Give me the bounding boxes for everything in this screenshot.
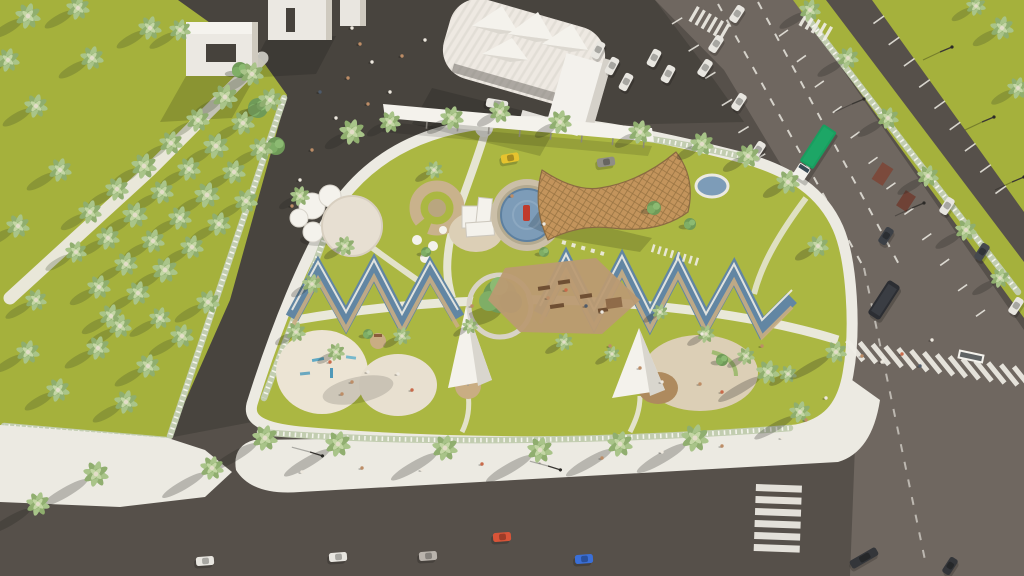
pool-red-slide (523, 205, 530, 221)
palm-crown (443, 446, 448, 451)
palm-crown (786, 372, 789, 375)
person-dot (510, 194, 513, 197)
tree-canopy (689, 220, 695, 226)
person-dot (600, 456, 603, 459)
car-cabin (603, 158, 611, 165)
play-castle (466, 221, 495, 237)
palm-crown (700, 142, 704, 146)
palm-crown (744, 354, 747, 357)
pole-lamp (862, 97, 865, 100)
palm-crown (158, 316, 162, 320)
palm-crown (178, 28, 182, 32)
palm-crown (450, 116, 454, 120)
palm-crown (611, 353, 614, 356)
palm-crown (766, 370, 770, 374)
palm-crown (96, 346, 100, 350)
aerial-park-render (0, 0, 1024, 576)
pole-lamp (992, 115, 995, 118)
palm-crown (704, 332, 707, 335)
palm-crown (241, 121, 245, 125)
person-dot (318, 90, 321, 93)
scene-root (0, 0, 1024, 576)
tree-canopy (425, 248, 430, 253)
person-dot (400, 54, 403, 57)
person-dot (423, 38, 426, 41)
palm-crown (206, 300, 210, 304)
palm-crown (846, 56, 850, 60)
stall-line (550, 133, 551, 140)
person-dot (388, 90, 391, 93)
palm-crown (160, 190, 164, 194)
person-dot (358, 42, 361, 45)
stall-line (426, 122, 427, 129)
palm-crown (88, 210, 92, 214)
person-dot (698, 382, 701, 385)
building-box (268, 0, 332, 40)
car-cabin (499, 534, 506, 541)
palm-crown (692, 435, 697, 440)
palm-crown (926, 174, 930, 178)
palm-crown (34, 298, 38, 302)
palm-crown (118, 324, 122, 328)
person-dot (540, 460, 543, 463)
person-dot (366, 102, 369, 105)
splash-equipment (330, 368, 333, 378)
stall-line (581, 136, 582, 143)
palm-crown (334, 350, 337, 353)
person-dot (824, 396, 827, 399)
building-box-roof (186, 22, 258, 34)
person-dot (564, 288, 567, 291)
person-dot (700, 332, 703, 335)
stall-line (488, 127, 489, 134)
tree-canopy (653, 203, 660, 210)
scene-svg (0, 0, 1024, 576)
palm-crown (558, 120, 562, 124)
person-dot (290, 204, 293, 207)
palm-crown (886, 116, 890, 120)
person-dot (584, 304, 587, 307)
person-dot (334, 116, 337, 119)
palm-crown (1000, 26, 1004, 30)
palm-crown (400, 334, 403, 337)
palm-crown (151, 239, 155, 243)
person-dot (660, 380, 663, 383)
stall-line (612, 138, 613, 145)
palm-crown (196, 118, 200, 122)
palm-crown (124, 262, 128, 266)
person-dot (298, 178, 301, 181)
person-dot (410, 388, 413, 391)
building-slot (286, 8, 295, 32)
person-dot (300, 470, 303, 473)
palm-crown (298, 194, 302, 198)
person-dot (760, 344, 763, 347)
palm-crown (618, 442, 623, 447)
pole-lamp (950, 45, 953, 48)
palm-crown (90, 56, 94, 60)
palm-crown (169, 141, 173, 145)
palm-crown (244, 199, 248, 203)
person-dot (860, 354, 863, 357)
person-dot (480, 462, 483, 465)
person-dot (470, 304, 473, 307)
palm-crown (26, 350, 30, 354)
palm-crown (106, 236, 110, 240)
person-dot (660, 450, 663, 453)
park-bench (374, 334, 382, 337)
cafe-table (412, 235, 422, 245)
palm-crown (6, 58, 10, 62)
palm-crown (178, 216, 182, 220)
palm-crown (263, 436, 268, 441)
palm-crown (538, 448, 543, 453)
tree-canopy (721, 356, 727, 362)
palm-crown (964, 228, 968, 232)
person-dot (804, 418, 807, 421)
palm-crown (1016, 86, 1020, 90)
palm-crown (834, 350, 838, 354)
palm-crown (469, 325, 472, 328)
palm-crown (36, 502, 40, 506)
palm-crown (974, 4, 978, 8)
palm-crown (94, 472, 99, 477)
red-car (491, 532, 512, 545)
palm-crown (798, 410, 802, 414)
person-dot (900, 352, 903, 355)
palm-crown (97, 285, 101, 289)
person-dot (720, 444, 723, 447)
palm-crown (109, 314, 113, 318)
building-box-shade (326, 0, 332, 40)
person-dot (720, 390, 723, 393)
umbrella-canopy (290, 209, 308, 227)
tree-canopy (275, 139, 284, 148)
building-courtyard (206, 44, 236, 62)
palm-crown (336, 442, 341, 447)
umbrella-canopy (303, 222, 323, 242)
person-dot (880, 360, 883, 363)
person-dot (350, 26, 353, 29)
palm-crown (26, 14, 31, 19)
palm-crown (786, 180, 790, 184)
palm-crown (350, 130, 355, 135)
palm-crown (76, 6, 80, 10)
car-cabin (581, 556, 588, 563)
person-dot (350, 380, 353, 383)
person-dot (396, 372, 399, 375)
palm-crown (217, 222, 221, 226)
cafe-table (439, 226, 447, 234)
person-dot (360, 466, 363, 469)
person-dot (542, 222, 545, 225)
palm-crown (146, 364, 150, 368)
palm-crown (232, 170, 236, 174)
palm-crown (343, 244, 347, 248)
tree-canopy (543, 248, 548, 253)
palm-crown (187, 167, 191, 171)
palm-crown (498, 110, 502, 114)
palm-crown (34, 104, 38, 108)
palm-crown (74, 250, 78, 254)
palm-crown (388, 120, 392, 124)
palm-crown (148, 26, 152, 30)
person-dot (420, 468, 423, 471)
car-cabin (335, 554, 342, 561)
palm-crown (808, 8, 812, 12)
palm-crown (124, 400, 128, 404)
car-cabin (202, 558, 209, 565)
palm-crown (268, 98, 272, 102)
person-dot (918, 364, 921, 367)
car (327, 552, 348, 565)
stall-line (519, 130, 520, 137)
person-dot (638, 366, 641, 369)
car (194, 556, 215, 569)
ring-planter-core (428, 199, 446, 217)
palm-crown (136, 291, 140, 295)
person-dot (340, 392, 343, 395)
palm-crown (56, 388, 60, 392)
person-dot (600, 310, 603, 313)
person-dot (930, 338, 933, 341)
palm-crown (205, 193, 210, 198)
palm-crown (115, 187, 119, 191)
palm-crown (259, 147, 263, 151)
palm-crown (432, 168, 435, 171)
palm-crown (562, 340, 565, 343)
palm-crown (190, 245, 194, 249)
person-dot (608, 344, 611, 347)
palm-crown (16, 224, 20, 228)
palm-crown (638, 130, 642, 134)
palm-crown (746, 154, 750, 158)
person-dot (366, 370, 369, 373)
palm-crown (310, 282, 314, 286)
palm-crown (223, 95, 228, 100)
palm-crown (133, 213, 138, 218)
palm-crown (294, 330, 298, 334)
palm-crown (998, 276, 1002, 280)
person-dot (780, 436, 783, 439)
palm-crown (58, 168, 62, 172)
small-pool (696, 175, 728, 197)
building-box-shade (360, 0, 366, 26)
car (417, 551, 438, 564)
palm-crown (163, 268, 168, 273)
person-dot (370, 60, 373, 63)
palm-crown (659, 311, 662, 314)
person-dot (328, 360, 331, 363)
palm-crown (210, 466, 214, 470)
palm-crown (180, 334, 184, 338)
person-dot (346, 76, 349, 79)
palm-crown (214, 144, 219, 149)
person-dot (546, 296, 549, 299)
tree-canopy (367, 330, 372, 335)
car-cabin (425, 553, 432, 560)
palm-crown (816, 244, 820, 248)
blue-car (573, 554, 594, 567)
pole-lamp (922, 201, 925, 204)
palm-crown (250, 72, 254, 76)
person-dot (310, 148, 313, 151)
palm-crown (142, 164, 147, 169)
